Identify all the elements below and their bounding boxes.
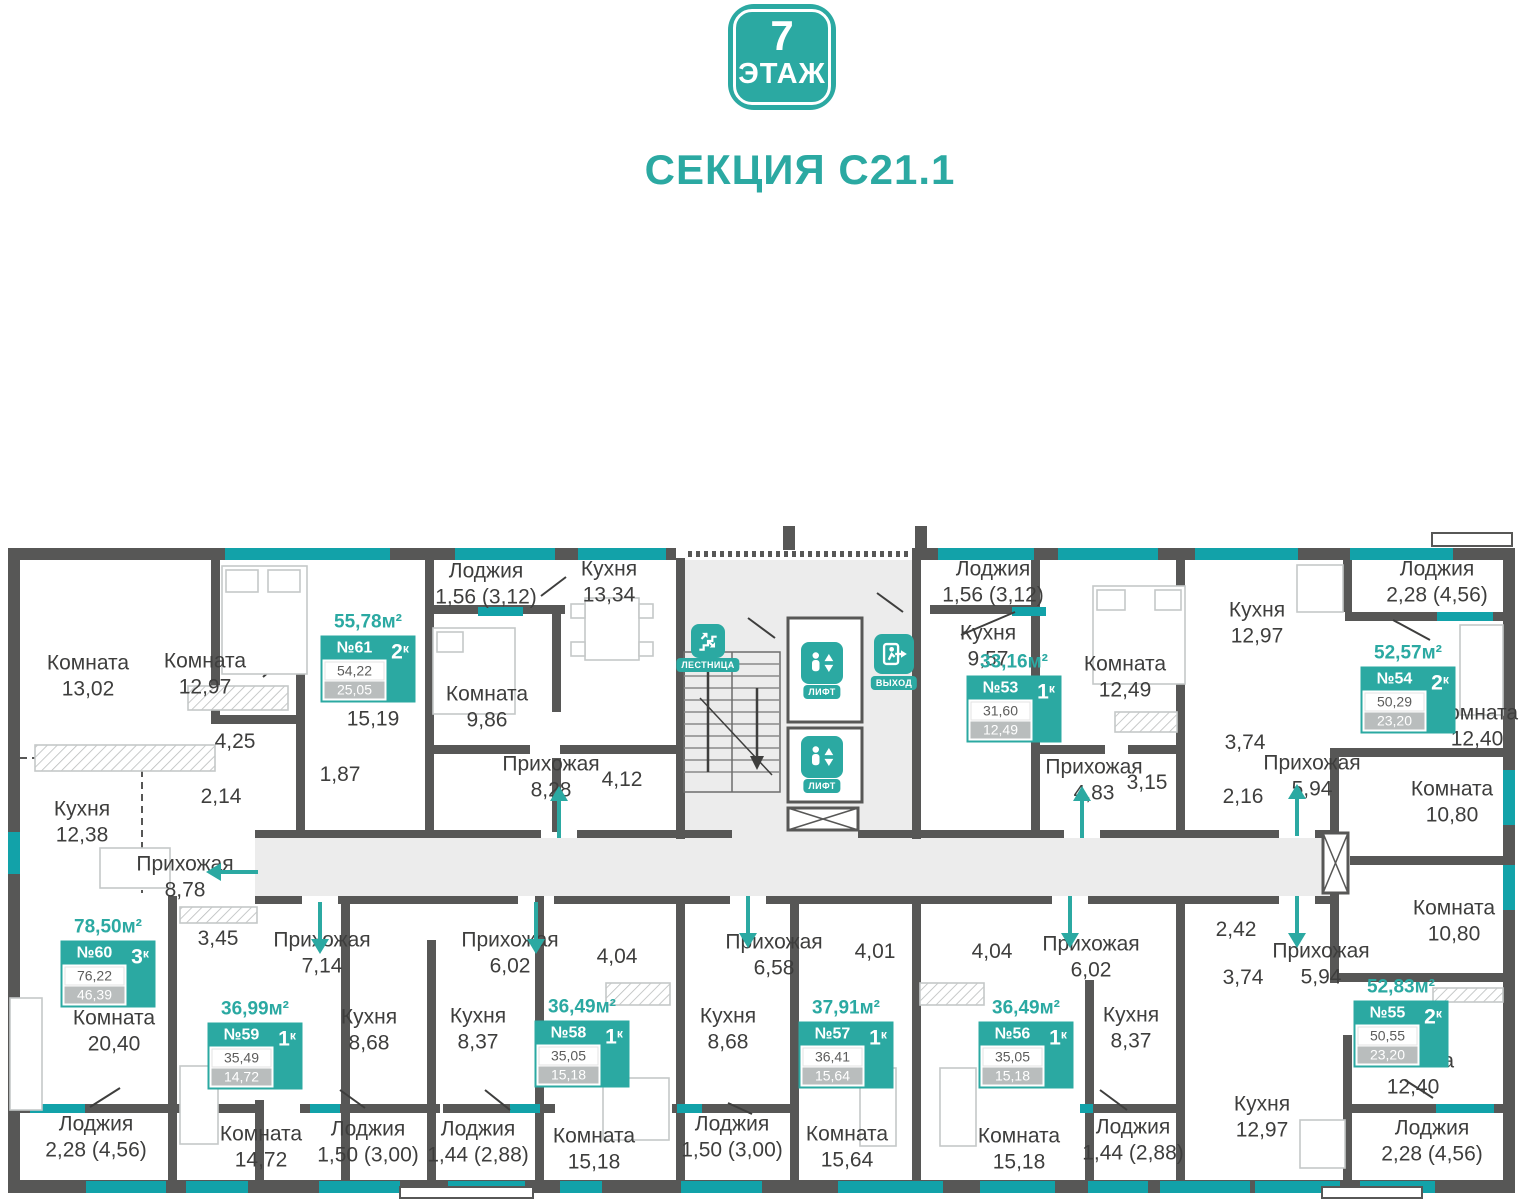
apartment-total-area: 36,49м² [535, 997, 630, 1019]
room-area: 12,97 [1229, 623, 1285, 649]
room-area: 4,04 [972, 939, 1013, 965]
room-area: 4,04 [597, 944, 638, 970]
room-name: Лоджия [427, 1116, 529, 1142]
room-label: 3,45 [198, 926, 239, 952]
apartment-rooms-count: 2к [387, 638, 414, 701]
room-area: 12,97 [164, 674, 246, 700]
room-name: Комната [164, 648, 246, 674]
apartment-second-area: 12,49 [971, 722, 1031, 739]
room-label: Кухня8,37 [1103, 1002, 1159, 1053]
room-area: 1,56 (3,12) [435, 584, 537, 610]
apartment-living-area: 50,29 [1365, 693, 1425, 712]
room-label: 3,15 [1127, 770, 1168, 796]
stairs-icon [691, 624, 725, 658]
room-label: Лоджия1,50 (3,00) [681, 1111, 783, 1162]
entry-arrow-left [204, 861, 260, 883]
apartment-second-area: 14,72 [212, 1069, 272, 1086]
room-area: 2,28 (4,56) [1381, 1141, 1483, 1167]
room-label: Лоджия1,56 (3,12) [435, 558, 537, 609]
room-area: 8,68 [341, 1030, 397, 1056]
apartment-rooms-count: 1к [601, 1023, 628, 1086]
room-area: 6,02 [461, 953, 558, 979]
room-label: 4,01 [855, 939, 896, 965]
room-area: 8,37 [1103, 1028, 1159, 1054]
room-label: 2,14 [201, 784, 242, 810]
room-label: 2,16 [1223, 784, 1264, 810]
room-label: Комната10,80 [1411, 776, 1493, 827]
room-name: Лоджия [942, 556, 1044, 582]
room-name: Кухня [450, 1003, 506, 1029]
entry-arrow-up [548, 784, 570, 840]
room-label: 4,25 [215, 729, 256, 755]
room-label: Прихожая5,94 [1263, 750, 1360, 801]
room-area: 3,45 [198, 926, 239, 952]
room-name: Лоджия [681, 1111, 783, 1137]
apartment-living-area: 31,60 [971, 702, 1031, 721]
apartment-badge-59[interactable]: 36,99м² №59 35,49 14,72 1к [208, 999, 303, 1090]
room-area: 6,58 [725, 955, 822, 981]
lift-caption: ЛИФТ [803, 779, 840, 793]
room-label: Комната15,64 [806, 1121, 888, 1172]
room-area: 2,28 (4,56) [1386, 582, 1488, 608]
room-area: 12,97 [1234, 1117, 1290, 1143]
room-name: Комната [220, 1121, 302, 1147]
apartment-total-area: 36,99м² [208, 999, 303, 1021]
apartment-badge-53[interactable]: 33,16м² №53 31,60 12,49 1к [967, 652, 1062, 743]
apartment-badge-56[interactable]: 36,49м² №56 35,05 15,18 1к [979, 998, 1074, 1089]
apartment-rooms-count: 1к [274, 1025, 301, 1088]
apartment-total-area: 52,83м² [1354, 977, 1449, 999]
room-label: Кухня12,97 [1229, 597, 1285, 648]
room-area: 15,19 [332, 706, 414, 732]
room-label: Лоджия1,50 (3,00) [317, 1116, 419, 1167]
room-name: Кухня [700, 1003, 756, 1029]
entry-arrow-down [1059, 894, 1081, 950]
apartment-number: №54 [1363, 669, 1427, 691]
room-name: Кухня [341, 1004, 397, 1030]
room-name: Комната [446, 681, 528, 707]
room-name: Комната [553, 1123, 635, 1149]
room-area: 2,42 [1216, 917, 1257, 943]
entry-arrow-down [309, 900, 331, 956]
room-label: Комната12,49 [1084, 651, 1166, 702]
apartment-total-area: 52,57м² [1361, 643, 1456, 665]
apartment-total-area: 36,49м² [979, 998, 1074, 1020]
room-area: 6,02 [1042, 957, 1139, 983]
room-area: 2,28 (4,56) [45, 1137, 147, 1163]
room-label: 3,74 [1225, 730, 1266, 756]
room-label: Прихожая6,02 [1042, 931, 1139, 982]
room-name: Лоджия [45, 1111, 147, 1137]
apartment-living-area: 36,41 [803, 1048, 863, 1067]
apartment-number: №55 [1356, 1003, 1420, 1025]
room-name: Комната [47, 650, 129, 676]
room-area: 12,49 [1084, 677, 1166, 703]
apartment-rooms-count: 1к [1045, 1024, 1072, 1087]
apartment-living-area: 50,55 [1358, 1027, 1418, 1046]
room-name: Комната [978, 1123, 1060, 1149]
apartment-number: №53 [969, 678, 1033, 700]
room-area: 13,02 [47, 676, 129, 702]
entry-arrow-up [1286, 782, 1308, 838]
room-name: Кухня [581, 556, 637, 582]
apartment-second-area: 15,18 [539, 1067, 599, 1084]
lift-icon [801, 736, 843, 778]
room-name: Комната [1084, 651, 1166, 677]
room-area: 3,15 [1127, 770, 1168, 796]
apartment-number: №61 [323, 638, 387, 660]
apartment-number: №56 [981, 1024, 1045, 1046]
apartment-living-area: 35,05 [983, 1048, 1043, 1067]
apartment-rooms-count: 2к [1427, 669, 1454, 732]
room-label: Лоджия2,28 (4,56) [1381, 1115, 1483, 1166]
room-name: Комната [1413, 895, 1495, 921]
room-area: 15,18 [553, 1149, 635, 1175]
room-area: 1,50 (3,00) [681, 1137, 783, 1163]
room-name: Кухня [1103, 1002, 1159, 1028]
room-area: 5,94 [1263, 776, 1360, 802]
room-label: Лоджия1,56 (3,12) [942, 556, 1044, 607]
room-area: 1,56 (3,12) [942, 582, 1044, 608]
entry-arrow-down [525, 900, 547, 956]
room-name: Комната [1411, 776, 1493, 802]
apartment-badge-58[interactable]: 36,49м² №58 35,05 15,18 1к [535, 997, 630, 1088]
entry-arrow-up [1071, 784, 1093, 840]
entry-arrow-down [1286, 894, 1308, 950]
room-name: Кухня [1229, 597, 1285, 623]
room-name: Комната [806, 1121, 888, 1147]
room-label: 4,04 [972, 939, 1013, 965]
apartment-rooms-count: 2к [1420, 1003, 1447, 1066]
room-area: 2,14 [201, 784, 242, 810]
room-name: Прихожая [1263, 750, 1360, 776]
room-name: Прихожая [1042, 931, 1139, 957]
room-area: 4,12 [602, 767, 643, 793]
room-label: Лоджия2,28 (4,56) [1386, 556, 1488, 607]
room-area: 3,74 [1223, 965, 1264, 991]
room-label: Комната13,02 [47, 650, 129, 701]
floor-plan-page: 7 ЭТАЖ СЕКЦИЯ C21.1 [0, 0, 1523, 1200]
room-label: Комната12,97 [164, 648, 246, 699]
room-name: Прихожая [502, 751, 599, 777]
room-area: 14,72 [220, 1147, 302, 1173]
room-label: Комната15,18 [553, 1123, 635, 1174]
room-name: Лоджия [1381, 1115, 1483, 1141]
apartment-second-area: 15,64 [803, 1068, 863, 1085]
apartment-number: №57 [801, 1024, 865, 1046]
room-area: 2,16 [1223, 784, 1264, 810]
room-label: Лоджия2,28 (4,56) [45, 1111, 147, 1162]
room-area: 1,87 [320, 762, 361, 788]
room-label: 4,04 [597, 944, 638, 970]
room-label: Лоджия1,44 (2,88) [427, 1116, 529, 1167]
apartment-living-area: 76,22 [65, 967, 125, 986]
room-area: 12,40 [1372, 1074, 1454, 1100]
apartment-living-area: 35,05 [539, 1047, 599, 1066]
apartment-rooms-count: 3к [127, 943, 154, 1006]
room-label: Кухня13,34 [581, 556, 637, 607]
apartment-total-area: 55,78м² [321, 612, 416, 634]
room-name: Кухня [54, 796, 110, 822]
room-label: Комната10,80 [1413, 895, 1495, 946]
apartment-second-area: 23,20 [1358, 1047, 1418, 1064]
apartment-total-area: 37,91м² [799, 998, 894, 1020]
apartment-second-area: 25,05 [325, 682, 385, 699]
apartment-number: №59 [210, 1025, 274, 1047]
room-name: Лоджия [435, 558, 537, 584]
apartment-number: №58 [537, 1023, 601, 1045]
exit-icon [874, 634, 914, 674]
apartment-rooms-count: 1к [1033, 678, 1060, 741]
stairs-caption: ЛЕСТНИЦА [676, 658, 739, 672]
room-label: Кухня8,68 [700, 1003, 756, 1054]
room-label: Лоджия1,44 (2,88) [1082, 1114, 1184, 1165]
apartment-number: №60 [63, 943, 127, 965]
room-label: Комната14,72 [220, 1121, 302, 1172]
room-label: Кухня12,97 [1234, 1091, 1290, 1142]
room-area: 10,80 [1411, 802, 1493, 828]
room-area: 4,25 [215, 729, 256, 755]
apartment-badge-61[interactable]: 55,78м² №61 54,22 25,05 2к [321, 612, 416, 703]
room-label: Кухня8,37 [450, 1003, 506, 1054]
room-name: Комната [73, 1005, 155, 1031]
lift-caption: ЛИФТ [803, 685, 840, 699]
room-name: Лоджия [317, 1116, 419, 1142]
room-label: Комната20,40 [73, 1005, 155, 1056]
apartment-second-area: 46,39 [65, 987, 125, 1004]
room-label: Кухня12,38 [54, 796, 110, 847]
room-label: 3,74 [1223, 965, 1264, 991]
room-area: 8,68 [700, 1029, 756, 1055]
apartment-second-area: 15,18 [983, 1068, 1043, 1085]
room-area: 8,37 [450, 1029, 506, 1055]
room-area: 15,18 [978, 1149, 1060, 1175]
apartment-total-area: 78,50м² [61, 917, 156, 939]
exit-caption: ВЫХОД [871, 676, 917, 690]
room-name: Кухня [1234, 1091, 1290, 1117]
room-area: 7,14 [273, 953, 370, 979]
room-area: 13,34 [581, 582, 637, 608]
room-area: 3,74 [1225, 730, 1266, 756]
room-area: 1,44 (2,88) [427, 1142, 529, 1168]
room-area: 4,01 [855, 939, 896, 965]
room-name: Лоджия [1386, 556, 1488, 582]
room-area: 1,50 (3,00) [317, 1142, 419, 1168]
apartment-badge-60[interactable]: 78,50м² №60 76,22 46,39 3к [61, 917, 156, 1008]
room-name: Лоджия [1082, 1114, 1184, 1140]
room-label: 4,12 [602, 767, 643, 793]
room-area: 20,40 [73, 1031, 155, 1057]
room-area: 10,80 [1413, 921, 1495, 947]
apartment-badge-55[interactable]: 52,83м² №55 50,55 23,20 2к [1354, 977, 1449, 1068]
apartment-badge-54[interactable]: 52,57м² №54 50,29 23,20 2к [1361, 643, 1456, 734]
room-label: Кухня8,68 [341, 1004, 397, 1055]
room-area: 12,38 [54, 822, 110, 848]
room-area: 15,64 [806, 1147, 888, 1173]
apartment-total-area: 33,16м² [967, 652, 1062, 674]
entry-arrow-down [737, 894, 759, 950]
apartment-living-area: 35,49 [212, 1049, 272, 1068]
room-area: 9,86 [446, 707, 528, 733]
room-label: 2,42 [1216, 917, 1257, 943]
room-label: 1,87 [320, 762, 361, 788]
apartment-badge-57[interactable]: 37,91м² №57 36,41 15,64 1к [799, 998, 894, 1089]
room-label: Комната9,86 [446, 681, 528, 732]
room-area: 1,44 (2,88) [1082, 1140, 1184, 1166]
apartment-rooms-count: 1к [865, 1024, 892, 1087]
room-label: Комната15,18 [978, 1123, 1060, 1174]
apartment-living-area: 54,22 [325, 662, 385, 681]
lift-icon [801, 642, 843, 684]
apartment-second-area: 23,20 [1365, 713, 1425, 730]
room-name: Кухня [960, 620, 1016, 646]
